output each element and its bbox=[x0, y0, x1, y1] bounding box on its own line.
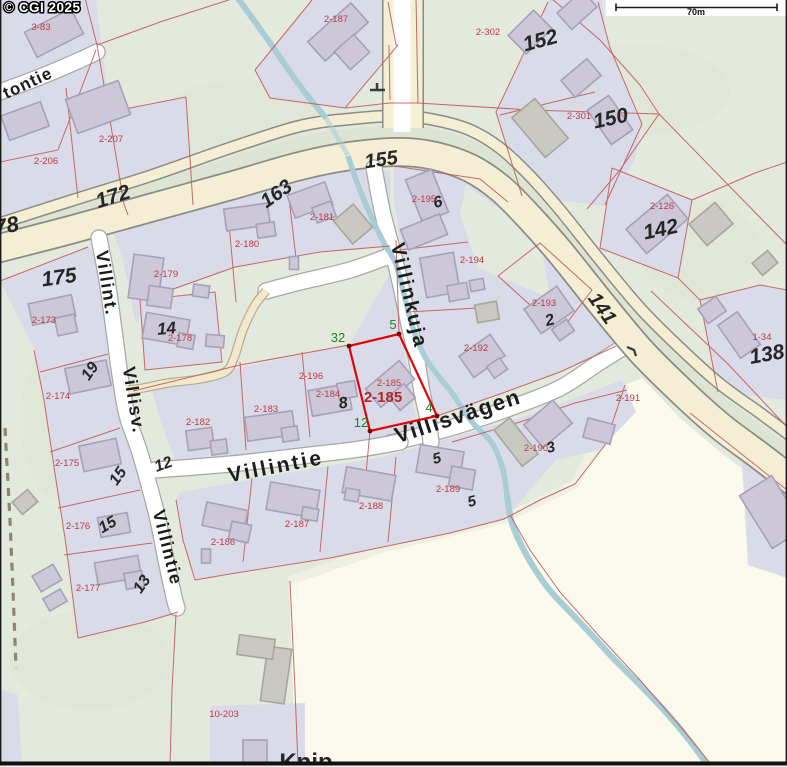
svg-text:2-191: 2-191 bbox=[616, 393, 640, 404]
svg-text:10-203: 10-203 bbox=[209, 709, 239, 720]
svg-text:2-175: 2-175 bbox=[55, 458, 79, 469]
svg-text:2-302: 2-302 bbox=[476, 27, 500, 38]
svg-text:5: 5 bbox=[389, 317, 396, 332]
svg-text:1-34: 1-34 bbox=[752, 332, 771, 343]
svg-text:2-192: 2-192 bbox=[464, 343, 488, 354]
svg-text:2-185: 2-185 bbox=[364, 389, 402, 406]
svg-text:2-207: 2-207 bbox=[99, 134, 123, 145]
svg-text:2-186: 2-186 bbox=[211, 537, 235, 548]
svg-text:2-190: 2-190 bbox=[524, 443, 548, 454]
svg-text:2-177: 2-177 bbox=[76, 583, 100, 594]
svg-text:175: 175 bbox=[40, 264, 78, 292]
svg-text:2-188: 2-188 bbox=[359, 501, 383, 512]
svg-text:2-193: 2-193 bbox=[532, 298, 556, 309]
svg-text:2-184: 2-184 bbox=[316, 389, 340, 400]
svg-text:2-194: 2-194 bbox=[460, 255, 484, 266]
svg-text:2-189: 2-189 bbox=[436, 484, 460, 495]
svg-text:2-173: 2-173 bbox=[32, 315, 56, 326]
svg-text:2-187: 2-187 bbox=[324, 14, 348, 25]
svg-text:2-176: 2-176 bbox=[66, 521, 90, 532]
svg-text:2-126: 2-126 bbox=[650, 201, 674, 212]
svg-text:12: 12 bbox=[354, 415, 368, 430]
svg-text:2-179: 2-179 bbox=[154, 269, 178, 280]
svg-text:32: 32 bbox=[331, 330, 345, 345]
svg-text:2-183: 2-183 bbox=[254, 404, 278, 415]
svg-text:2-187: 2-187 bbox=[285, 519, 309, 530]
svg-text:© CGI 2025: © CGI 2025 bbox=[4, 0, 80, 15]
svg-text:4: 4 bbox=[425, 400, 432, 415]
svg-text:2-206: 2-206 bbox=[34, 156, 58, 167]
svg-text:2-195: 2-195 bbox=[412, 194, 436, 205]
svg-text:2-185: 2-185 bbox=[377, 378, 401, 389]
svg-text:2-180: 2-180 bbox=[235, 239, 259, 250]
svg-text:2-301: 2-301 bbox=[567, 111, 591, 122]
svg-text:2-181: 2-181 bbox=[310, 212, 334, 223]
svg-text:3-83: 3-83 bbox=[31, 22, 50, 33]
svg-text:70m: 70m bbox=[687, 7, 705, 17]
svg-text:2-196: 2-196 bbox=[299, 371, 323, 382]
svg-text:2-174: 2-174 bbox=[46, 391, 70, 402]
svg-text:2-182: 2-182 bbox=[186, 417, 210, 428]
svg-text:2-178: 2-178 bbox=[168, 333, 192, 344]
